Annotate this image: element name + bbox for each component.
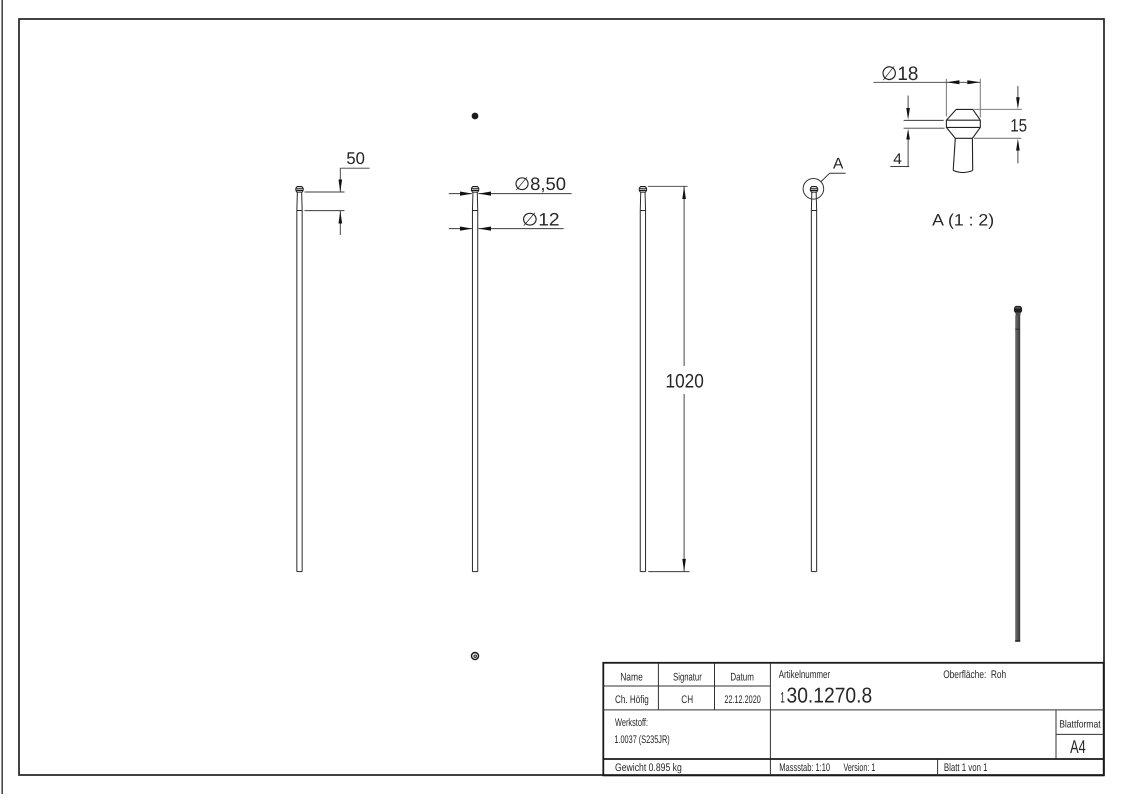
svg-text:Datum: Datum xyxy=(730,671,754,683)
svg-text:∅12: ∅12 xyxy=(522,210,560,230)
svg-text:Blattformat: Blattformat xyxy=(1059,718,1100,730)
svg-text:15: 15 xyxy=(1010,115,1027,135)
svg-text:Ch. Höfig: Ch. Höfig xyxy=(615,694,649,706)
svg-text:∅8,50: ∅8,50 xyxy=(514,174,566,194)
svg-text:Artikelnummer: Artikelnummer xyxy=(779,669,831,681)
svg-text:30.1270.8: 30.1270.8 xyxy=(787,683,873,707)
svg-text:1: 1 xyxy=(780,689,785,706)
svg-text:Version: 1: Version: 1 xyxy=(844,762,876,774)
svg-text:4: 4 xyxy=(893,151,902,168)
svg-text:22.12.2020: 22.12.2020 xyxy=(724,694,760,706)
svg-text:Name: Name xyxy=(620,671,643,683)
svg-text:50: 50 xyxy=(346,149,365,168)
svg-text:Oberfläche: Roh: Oberfläche: Roh xyxy=(943,669,1006,681)
svg-text:Gewicht 0.895 kg: Gewicht 0.895 kg xyxy=(615,762,682,774)
svg-text:CH: CH xyxy=(681,694,693,706)
svg-text:∅18: ∅18 xyxy=(881,63,918,85)
svg-text:1020: 1020 xyxy=(666,370,704,392)
svg-text:A (1 : 2): A (1 : 2) xyxy=(932,211,994,229)
svg-text:A: A xyxy=(833,156,844,173)
svg-text:A4: A4 xyxy=(1070,736,1086,757)
svg-text:Massstab: 1:10: Massstab: 1:10 xyxy=(779,762,830,774)
svg-text:Signatur: Signatur xyxy=(673,671,702,683)
svg-text:Werkstoff:: Werkstoff: xyxy=(615,717,648,729)
svg-text:Blatt 1 von 1: Blatt 1 von 1 xyxy=(944,762,988,774)
svg-text:1.0037 (S235JR): 1.0037 (S235JR) xyxy=(614,734,669,746)
